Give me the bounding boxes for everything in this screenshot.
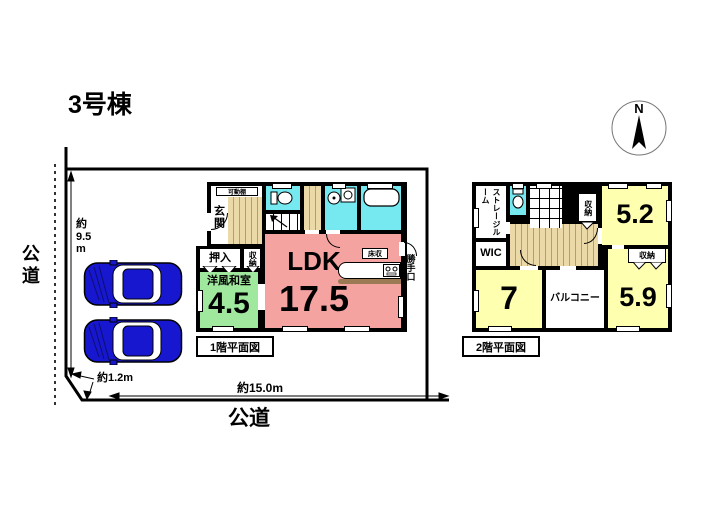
dimension-label-9-5m: 約 9.5 m (76, 218, 91, 256)
window (512, 183, 524, 189)
door-opening (305, 230, 319, 234)
stove-icon (383, 264, 400, 277)
floor-storage-box: 床収 (362, 248, 388, 259)
kitchen-counter-edge (338, 279, 401, 284)
bathtub-icon (363, 188, 401, 208)
genkan-wood-floor (228, 197, 262, 244)
door-opening (520, 266, 538, 270)
oshiire-label: 押入 (209, 253, 231, 265)
door-opening (258, 284, 265, 310)
movable-shelf-box: 可動棚 (216, 187, 258, 196)
road-label-left: 公道 (20, 244, 39, 288)
balcony: バルコニー (546, 270, 604, 328)
window (646, 183, 662, 189)
closet-door-marks (630, 262, 666, 271)
shuno-2f-top-label: 収納 (583, 200, 591, 216)
window (666, 200, 672, 222)
compass-north-label: N (634, 101, 643, 116)
dimension-label-1-2m: 約1.2m (97, 373, 133, 385)
balcony-label: バルコニー (550, 294, 600, 305)
stairs-arrow (267, 213, 291, 230)
window (473, 290, 479, 312)
floor1-caption: 1階平面図 (196, 336, 274, 357)
window (398, 296, 404, 318)
window (212, 326, 234, 332)
car-icon (83, 317, 183, 365)
floor2-caption-label: 2階平面図 (476, 339, 526, 355)
shuno-2f-right-label: 収納 (639, 250, 655, 261)
door-opening (506, 222, 510, 234)
washing-machine-icon (340, 187, 357, 204)
window (367, 183, 393, 189)
window (616, 326, 640, 332)
door-opening (612, 245, 624, 249)
road-label-bottom: 公道 (228, 408, 270, 430)
car-icon (83, 260, 183, 308)
wic-label: WIC (480, 248, 501, 260)
hall-wood-1f (304, 186, 321, 230)
shuno-2f-right-box: 収納 (628, 249, 666, 263)
room-7-label: 7 (476, 282, 542, 316)
movable-shelf-label: 可動棚 (228, 187, 246, 196)
toilet-icon (270, 188, 296, 208)
window (344, 326, 370, 332)
floor1-caption-label: 1階平面図 (210, 339, 260, 355)
floor-storage-label: 床収 (368, 249, 382, 259)
window (536, 183, 552, 189)
room-5-9-label: 5.9 (608, 283, 668, 311)
room-storage: ストレージルーム (476, 186, 506, 238)
window (272, 183, 292, 189)
window (197, 290, 203, 312)
room-5-2-label: 5.2 (602, 200, 668, 228)
floor2-caption: 2階平面図 (462, 336, 540, 357)
window (488, 326, 512, 332)
door-opening (598, 228, 602, 244)
shuno-2f-top-box: 収納 (578, 193, 597, 222)
shuno-1f-label: 収納 (248, 251, 256, 267)
toilet-icon (511, 188, 525, 212)
window (473, 208, 479, 228)
dimension-label-15-0m: 約15.0m (237, 382, 283, 395)
ldk-size-label: 17.5 (264, 280, 364, 318)
window (282, 326, 308, 332)
window (608, 183, 628, 189)
washitsu-label: 洋風和室 (202, 276, 256, 288)
stairs-2f (530, 186, 562, 228)
compass: N (606, 94, 672, 160)
room-wic: WIC (476, 242, 506, 266)
balcony-opening (560, 266, 576, 270)
floorplan-canvas: 3号棟 N (0, 0, 705, 525)
storage-room-label: ストレージルーム (480, 188, 502, 236)
window (332, 183, 346, 189)
window (666, 284, 672, 308)
katteguchi-label: 勝手口 (405, 254, 414, 281)
washitsu-size-label: 4.5 (202, 288, 256, 320)
